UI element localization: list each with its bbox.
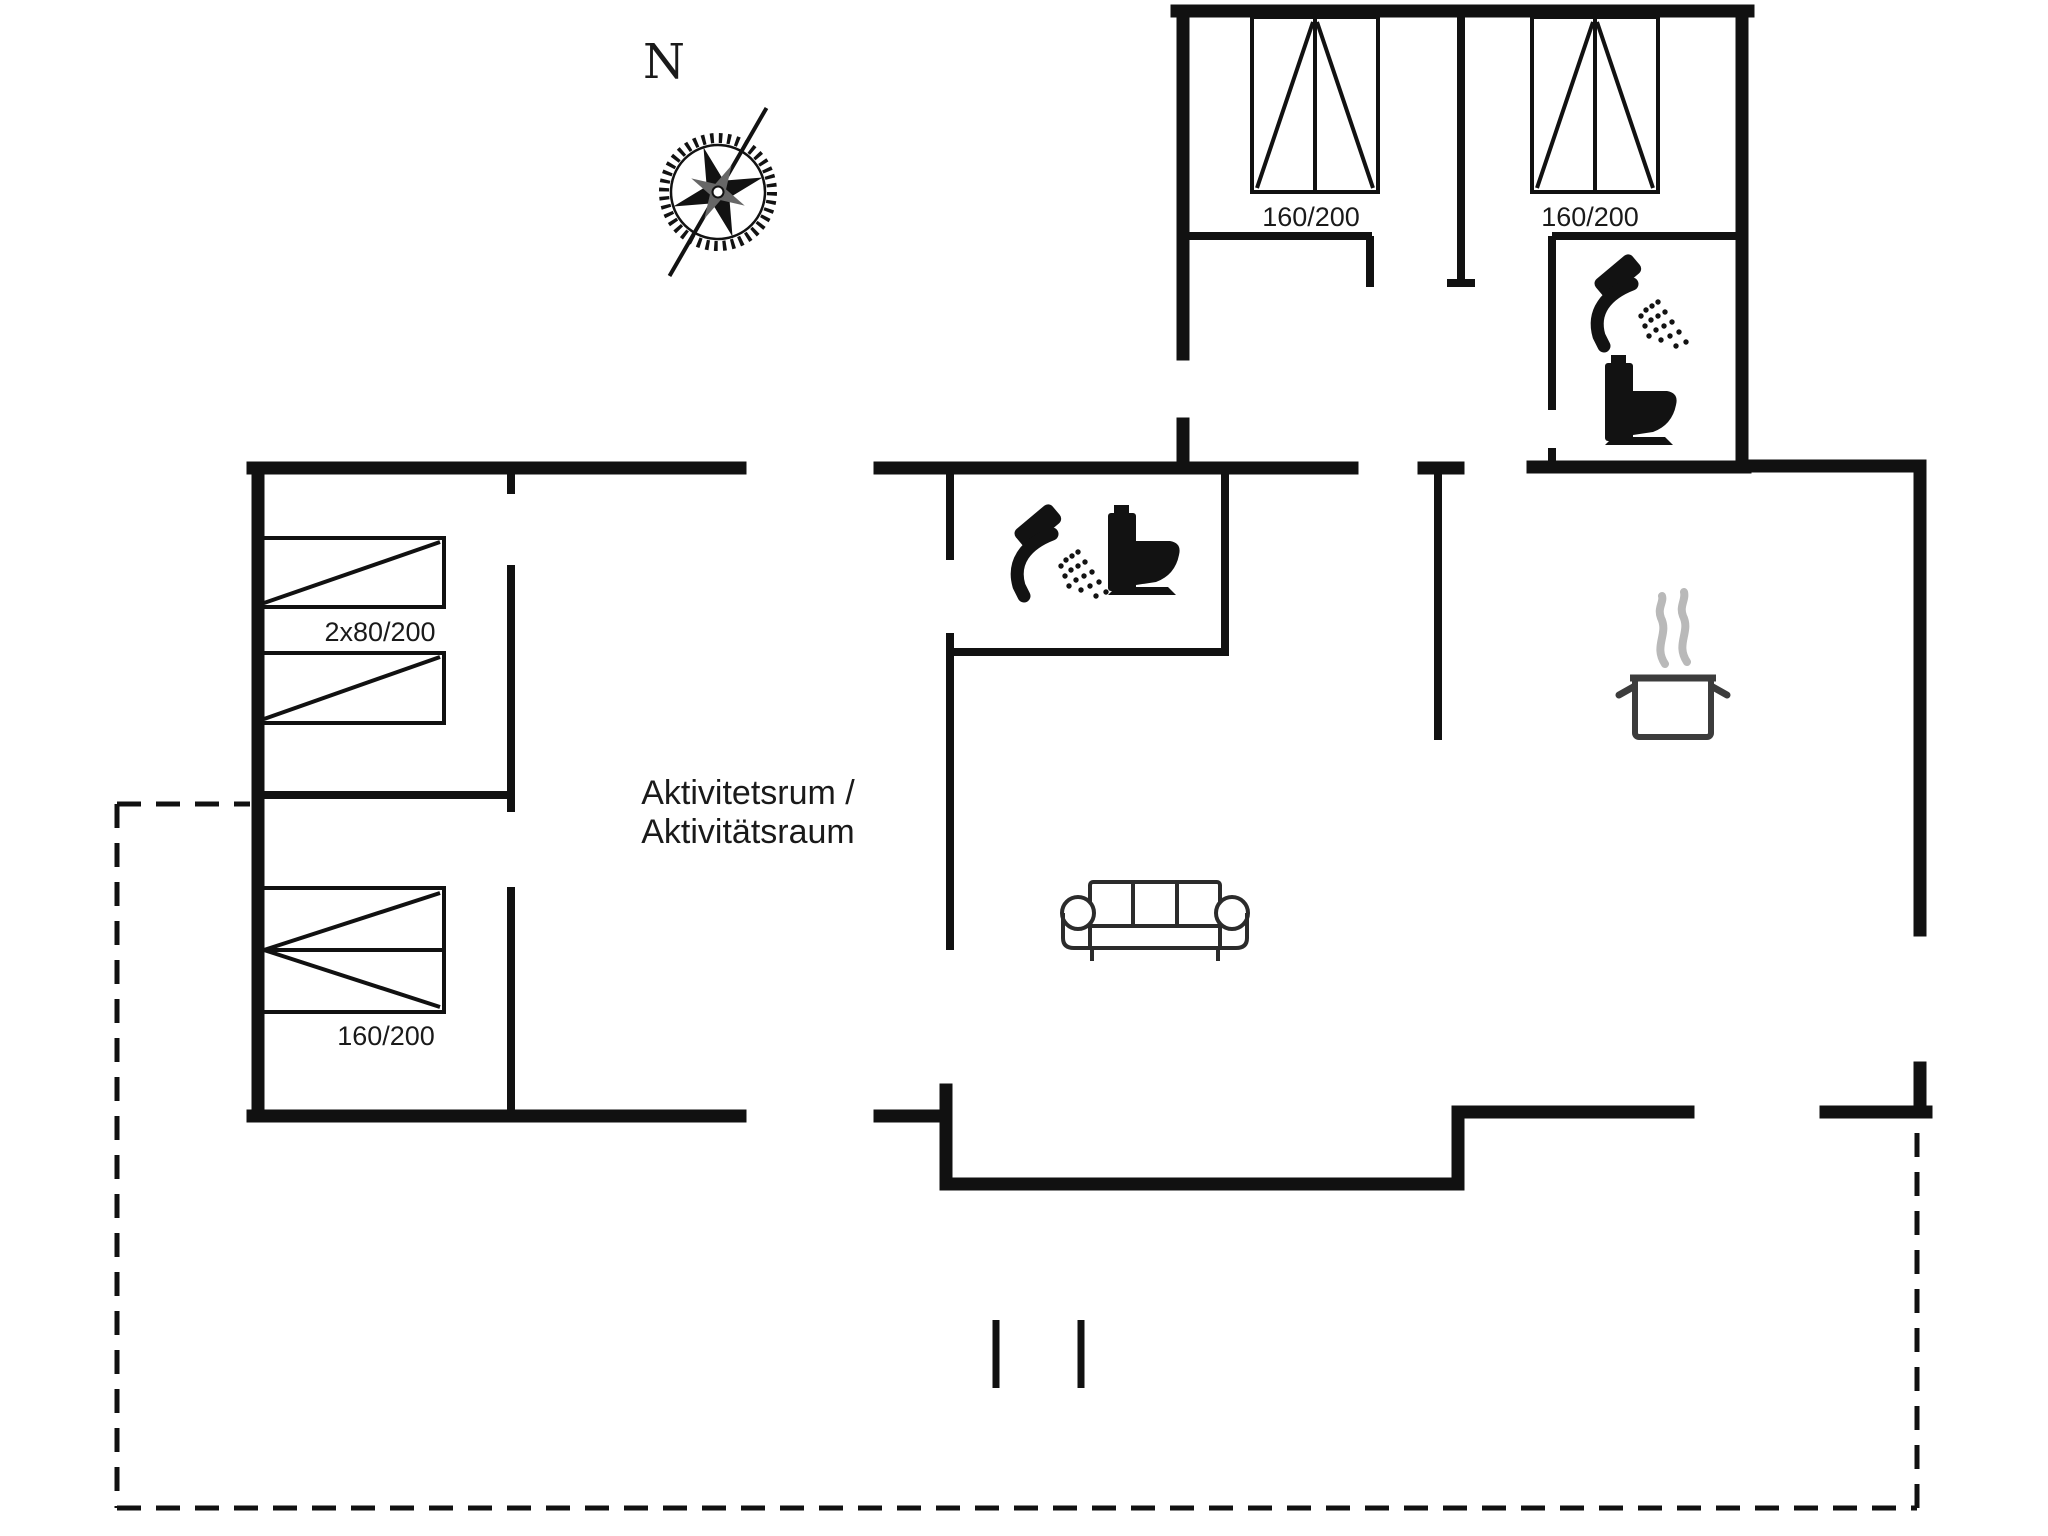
- compass-north-label: N: [643, 34, 685, 90]
- toilet-icon: [1605, 355, 1677, 445]
- bedroom2-bed-size-label: 160/200: [1541, 202, 1639, 232]
- activity-room-label-line1: Aktivitetsrum /: [641, 774, 855, 812]
- floor-plan-page: N 160/200 160/200 2x80/200 160/200 Aktiv…: [0, 0, 2048, 1536]
- compass-rose-icon: [629, 108, 806, 276]
- sofa-icon: [1062, 882, 1248, 961]
- bedroom1-double-bed-icon: [1252, 17, 1378, 192]
- bunk-bed-size-label: 2x80/200: [324, 617, 435, 647]
- double-bed-size-label: 160/200: [337, 1021, 435, 1051]
- bedroom1-bed-size-label: 160/200: [1262, 202, 1360, 232]
- exterior-walls: [253, 11, 1926, 1184]
- cooking-pot-icon: [1619, 592, 1727, 737]
- interior-walls: [258, 11, 1742, 1116]
- activity-room-label-line2: Aktivitätsraum: [641, 813, 855, 851]
- shower-icon: [1012, 502, 1109, 599]
- shower-icon: [1592, 252, 1689, 349]
- left-double-bed-icon: [260, 888, 444, 1012]
- floor-plan-drawing: N 160/200 160/200 2x80/200 160/200 Aktiv…: [0, 0, 2048, 1536]
- toilet-icon: [1108, 505, 1180, 595]
- bedroom2-double-bed-icon: [1532, 17, 1658, 192]
